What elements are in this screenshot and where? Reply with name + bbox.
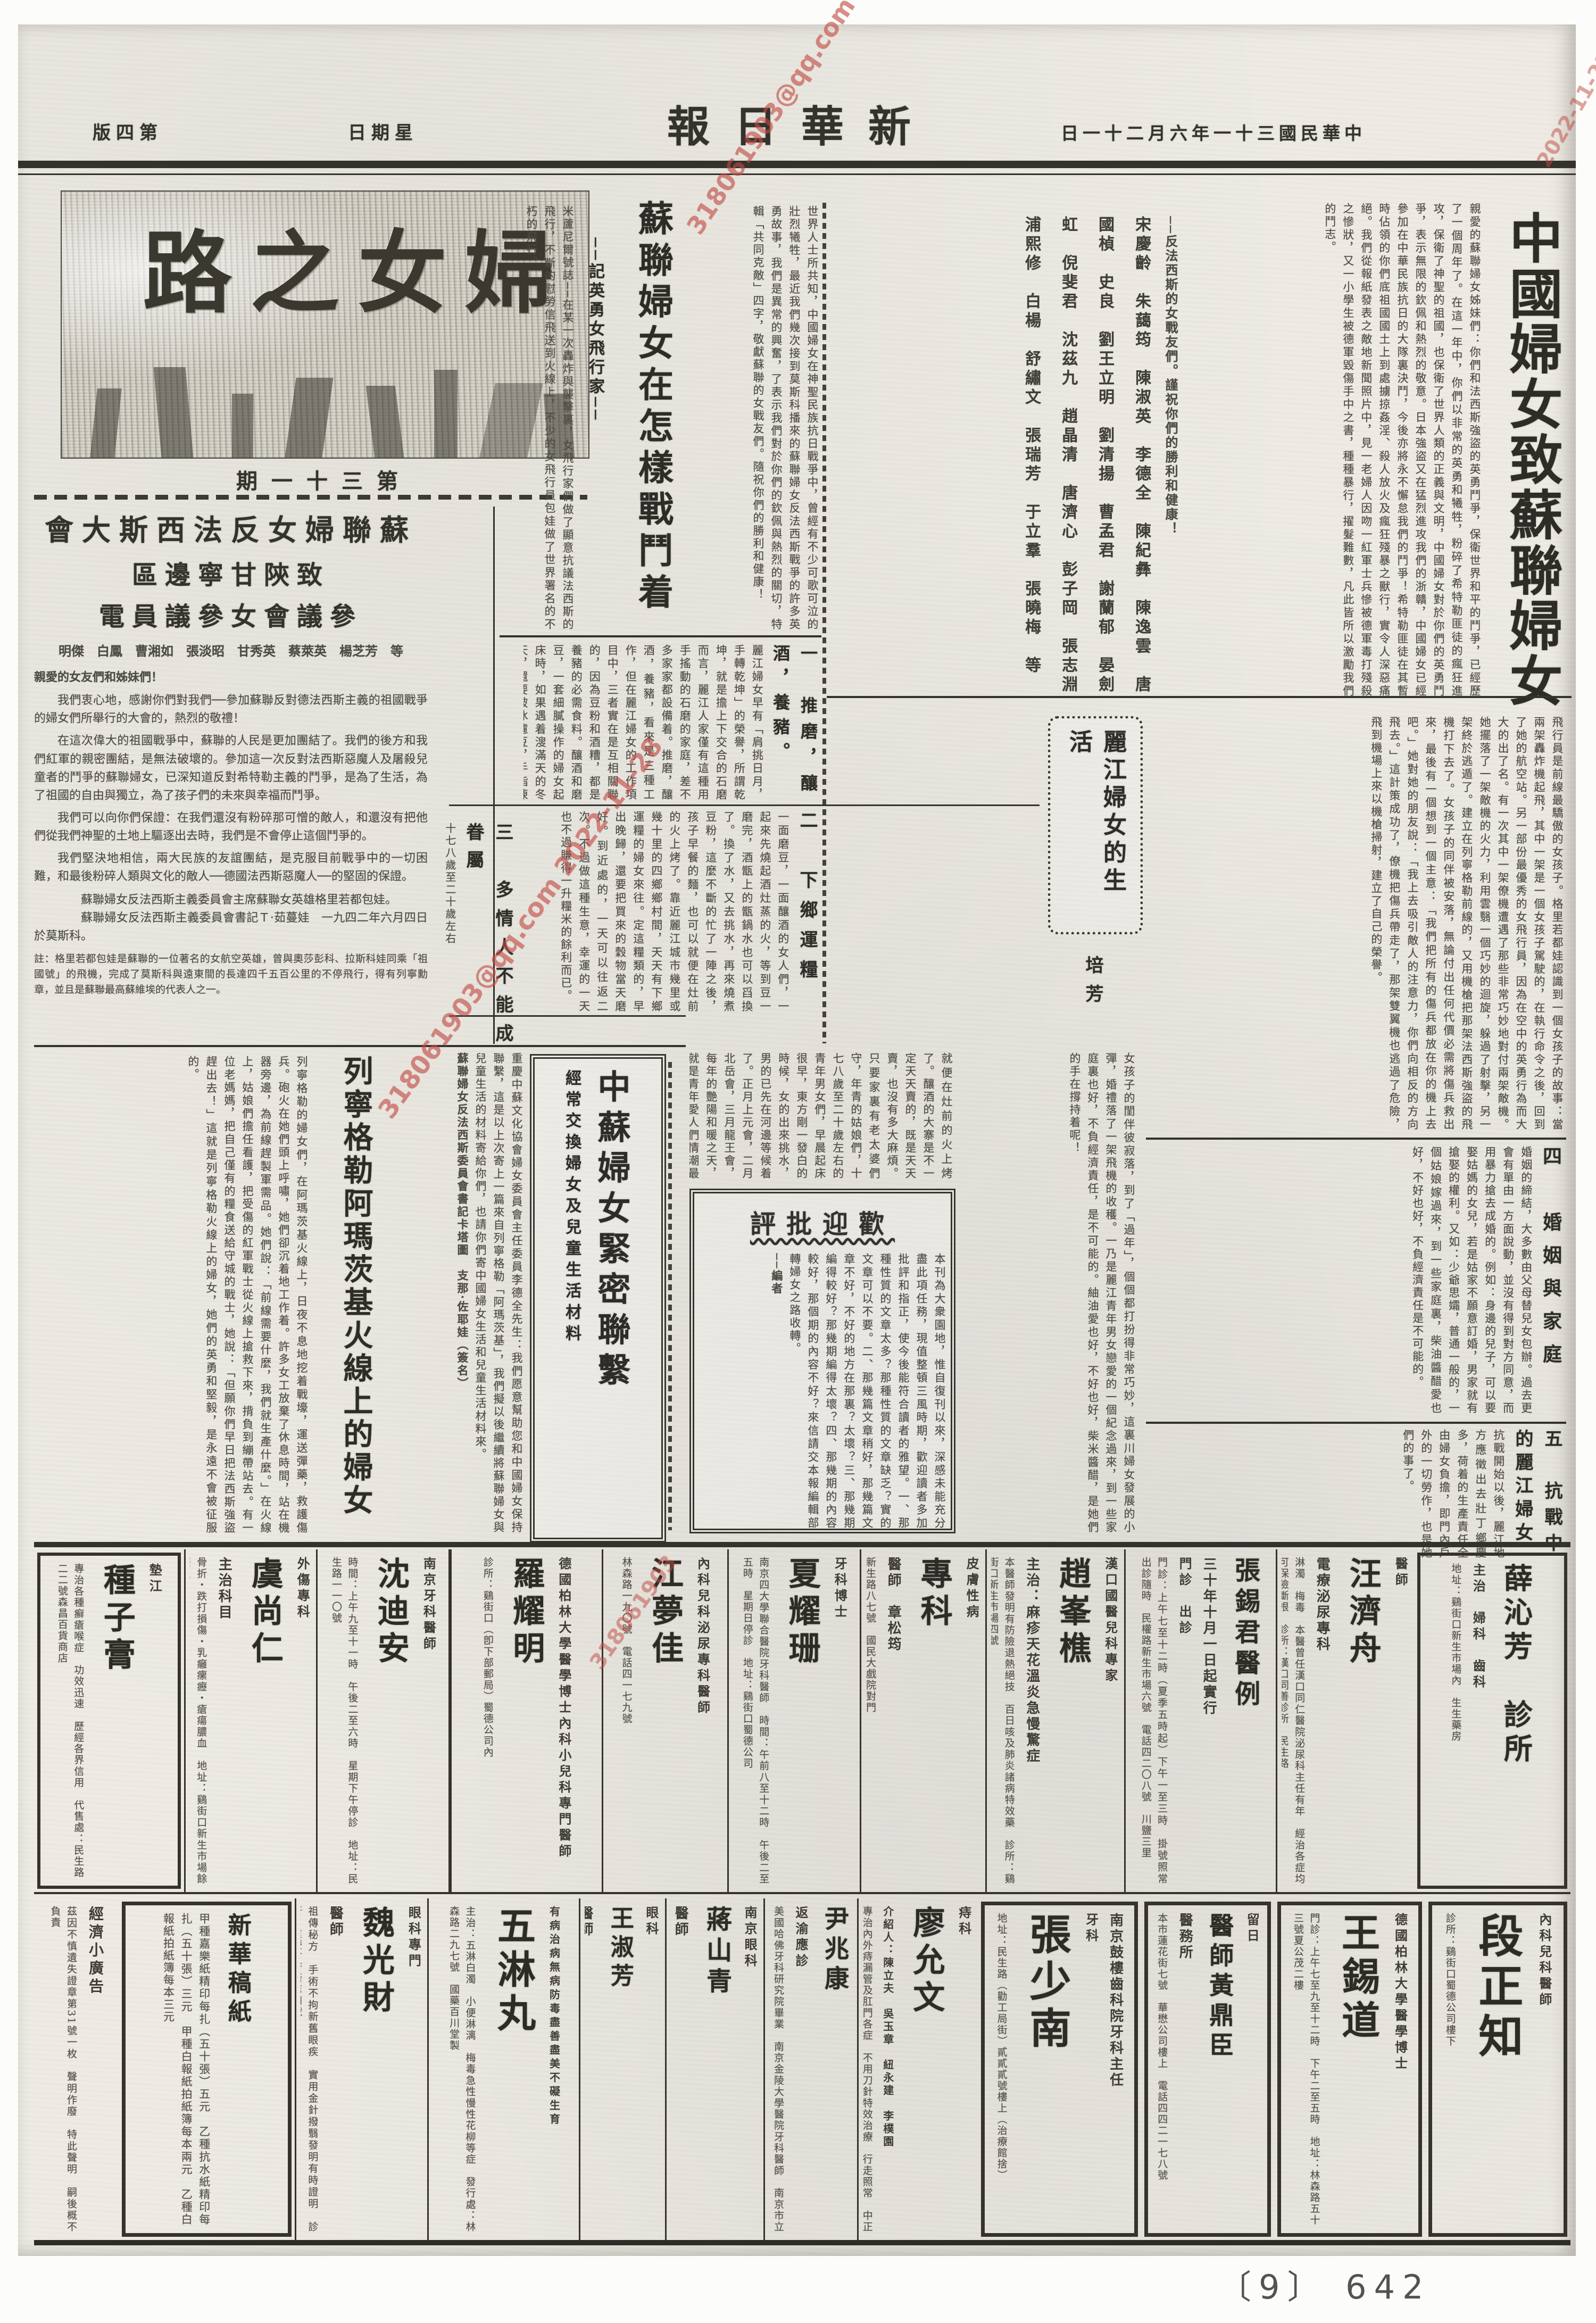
telegram-headline-2: 區邊寧甘陝致	[132, 560, 330, 590]
lijiang-section5-head: 五 抗戰中的麗江婦女	[1508, 1429, 1566, 1557]
telegram-paragraph: 我們堅決地相信，兩大民族的友誼團結，是克服目前戰爭中的一切困難，和最後粉碎人類與…	[34, 850, 428, 886]
ad-title: 張錫君醫例	[1226, 1557, 1263, 1885]
ad-title: 段正知	[1466, 1913, 1530, 2226]
leningrad-intro-block: 重慶中蘇文化協會婦女委員會主任委員李德全先生：我們愿意幫助您和中國婦女保持聯繫，…	[383, 1052, 526, 1534]
ad-details: 地址：民生路（勸工局街）貳貳貳號樓上（治療館捨）	[993, 1913, 1009, 2226]
ad-title: 張少南	[1017, 1913, 1077, 2226]
lijiang-title-box: 麗江婦女的生活	[1048, 716, 1143, 934]
leningrad-headline: 列寧格勒阿瑪茨基火線上的婦女	[315, 1056, 378, 1529]
ad-kicker: 門診 出診	[1175, 1557, 1194, 1885]
ad-details: 本市蓮花街七號 華懋公司樓上 電話四四二一七八號	[1154, 1913, 1170, 2226]
crowd-figure	[154, 367, 194, 458]
ad-subtitle: 南京鼓樓齒科院牙科主任	[1106, 1913, 1126, 2226]
ads-row-1: 墊江 種子膏 專治各種癬瘡喉症 功效迅速 歷經各界信用 代售處：民生路二二號森昌…	[34, 1549, 1570, 1894]
ad-details: 門診：上午七至十二時（夏季五時起）下午一至三時 掛號照常 出診隨時 民權路新生市…	[1137, 1557, 1170, 1885]
ad-title: 薛沁芳 診所	[1495, 1563, 1537, 1878]
ad-details: 專治各種癬瘡喉症 功效迅速 歷經各界信用 代售處：民生路二二號森昌百貨商店	[54, 1563, 86, 1878]
ad-title: 經濟小廣告	[85, 1906, 106, 2233]
ad-details: 祖傳秘方 手術不拘新舊眼疾 實用金針撥翳發明有時證明 診所：重慶會府衙第四號	[301, 1906, 321, 2233]
lijiang-section2-body: 一面磨豆，一面釀酒的女人們，一起來先燒起酒灶蒸的火，等到豆一磨完，酒甑上的甑鍋水…	[557, 811, 792, 1013]
article-telegram: 會大斯西法反女婦聯蘇 區邊寧甘陝致 電員議參女會議參 明傑 白鳳 曹湘如 張淡昭…	[34, 507, 428, 1065]
telegram-note: 註：格里若都包娃是蘇聯的一位著名的女航空英雄，曾與奧莎彭科、拉斯科娃同乘「祖國號…	[34, 951, 428, 998]
ad-details: 診所：鷄街口蜀德公司樓下	[1442, 1913, 1458, 2226]
ad-weiguangcai: 眼科專門 魏光財 醫師 祖傳秘方 手術不拘新舊眼疾 實用金針撥翳發明有時證明 診…	[295, 1898, 428, 2240]
ad-kicker: 南京牙科醫師	[419, 1557, 438, 1885]
weekday-label: 日期星	[348, 122, 418, 144]
ad-subtitle: 電療泌尿專科	[1312, 1557, 1332, 1885]
telegram-paragraph: 我們衷心地，感謝你們對我們──參加蘇聯反對德法西斯主義的祖國戰爭的婦女們所舉行的…	[34, 692, 428, 728]
ad-title: 趙峯樵	[1050, 1557, 1096, 1885]
exchange-box-title: 中蘇婦女緊密聯繫	[584, 1069, 637, 1516]
ad-subtitle: 醫師	[671, 1906, 691, 2233]
ad-title: 汪濟舟	[1340, 1557, 1386, 1885]
rule-above-ads	[34, 1542, 1570, 1547]
ad-duanzhengzhi: 內科兒科醫師 段正知 診所：鷄街口蜀德公司樓下	[1428, 1902, 1567, 2237]
aviator-subtitle: ──記英勇女飛行家──	[581, 237, 606, 620]
ad-title: 沈迪安	[368, 1557, 414, 1885]
header-rule-thick	[18, 161, 1576, 168]
ad-kicker: 牙科	[1082, 1913, 1101, 2226]
ad-title: 魏光財	[353, 1906, 399, 2233]
ad-jiangmengjia: 內科兒科泌尿專科醫師 江夢佳 林森路一九〇號 電話四一七九號	[602, 1549, 727, 1892]
header-rule-thin	[18, 173, 1576, 175]
ad-kicker: 醫師	[1391, 1557, 1410, 1885]
ad-huangdingchen: 留日 醫師黃鼎臣 醫務所 本市蓮花街七號 華懋公司樓上 電話四四二一七八號	[1144, 1902, 1271, 2237]
ad-subtitle: 主治：麻疹天花溫炎急慢驚症	[1023, 1557, 1042, 1885]
telegram-headline-3: 電員議參女會議參	[99, 602, 363, 632]
telegram-paragraph: 在這次偉大的祖國戰爭中，蘇聯的人民是更加團結了。我們的後方和我們紅軍的親密團結，…	[34, 732, 428, 804]
letter-signature-block: ──反法西斯的女戰友們。謹祝你們的勝利和健康！ 宋慶齡 朱藹筠 陳淑英 李德全 …	[835, 216, 1181, 695]
ad-title: 廖允文	[903, 1906, 950, 2233]
ad-title: 王錫道	[1329, 1913, 1385, 2226]
ad-jiangshanqing: 南京眼科 蔣山青 醫師 中一路四德里十五號 樓上 今日應診	[665, 1898, 763, 2240]
ad-subtitle: 醫務所	[1175, 1913, 1195, 2226]
ad-title: 蔣山青	[698, 1906, 735, 2233]
ad-details: 新生路八七號 國民大戲院對門	[866, 1557, 878, 1885]
ad-kicker: 德國柏林大學醫學博士	[1391, 1913, 1409, 2226]
lijiang-section1-head: 一 推磨，釀酒，養豬。	[766, 644, 821, 799]
exchange-box-subtitle: 經常交換婦女及兒童生活材料	[558, 1069, 584, 1516]
issue-number: 期一十三第	[236, 469, 412, 494]
ad-subtitle: 醫師	[585, 1906, 595, 2233]
ad-title: 五淋丸	[485, 1906, 541, 2233]
ad-title: 王淑芳	[603, 1906, 637, 2233]
ad-details: 淋濁 梅毒 本醫曾任漢口同仁醫院泌尿科主任有年 經治各症均可保險斷根 診所：漢口…	[1282, 1557, 1308, 1885]
crowd-figure	[90, 388, 122, 458]
ad-details: 門診：上午七至九至十二時 下午二至五時 地址：林森路五十三號夏公茂二樓	[1290, 1913, 1323, 2226]
ad-title: 虞尚仁	[242, 1557, 288, 1885]
letter-headline: 中國婦女致蘇聯婦女書	[1491, 211, 1570, 743]
ad-wulinwan: 有病治病無病防毒盡善盡美不礙生育 五淋丸 主治：五淋白濁 小便淋漓 梅毒急性慢性…	[427, 1898, 578, 2240]
lijiang-author: 培芳	[1074, 956, 1106, 1030]
ad-xinhua-gaozhi: 新華稿紙 甲種嘉樂紙精印每扎（五十張）五元 乙種抗水紙精印每扎（五十張）三元 甲…	[122, 1902, 292, 2237]
ad-details: 時間：上午九至十一時 午後二至六時 星期下午停診 地址：民生路一一〇號	[328, 1557, 361, 1885]
leningrad-signature: 蘇聯婦女反法西斯委員會書記卡塔圖 支那·佐耶娃（簽名）	[453, 1052, 471, 1534]
ad-details: 地址：鷄街口新生市場內 生生藥房	[1448, 1563, 1464, 1878]
ad-kicker: 留日	[1243, 1913, 1261, 2226]
lijiang-section3-body: 就便在灶前的火上烤了。釀酒的大寨是不一定天天賣的，既是天天賣，也沒有多大麻煩。只…	[689, 1052, 955, 1180]
lijiang-title: 麗江婦女的生活	[1061, 729, 1129, 921]
exchange-box: 中蘇婦女緊密聯繫 經常交換婦女及兒童生活材料	[530, 1054, 666, 1542]
lijiang-section5-body: 抗戰開始以後，麗江地方應徵出去壯丁鄉慶多，荷着的生產責任全由婦女負擔，即門內戶外…	[1399, 1429, 1508, 1559]
crowd-figure	[366, 386, 404, 458]
ad-kicker: 主治 婦科 齒科	[1469, 1563, 1487, 1878]
lijiang-section2: 二 下鄉運糧 一面磨豆，一面釀酒的女人們，一起來先燒起酒灶蒸的火，等到豆一磨完，…	[523, 811, 821, 1013]
telegram-signer-names: 明傑 白鳳 曹湘如 張淡昭 甘秀英 蔡萊英 楊芝芳 等	[34, 641, 428, 661]
ad-title: 專科	[911, 1557, 957, 1885]
ad-wangshufang: 眼科 王淑芳 醫師 專門 中一路一〇四號 全日應診	[579, 1898, 665, 2240]
telegram-headline-1: 會大斯西法反女婦聯蘇	[45, 513, 417, 547]
aviator-body-left: 米蘆尼爾號誌──在某一次轟炸與襲擊裏，女飛行家們做了顯意抗議法西斯的飛行，不斷的…	[500, 205, 577, 631]
lijiang-section1: 一 推磨，釀酒，養豬。 麗江婦女早有「肩挑日月，手轉乾坤」的榮譽，所謂乾坤，就是…	[523, 644, 821, 801]
ad-xueqinfang: 薛沁芳 診所 主治 婦科 齒科 地址：鷄街口新生市場內 生生藥房	[1417, 1553, 1567, 1889]
critique-box: 評批迎歡 本刊為大衆園地，惟自復刊以來，深感未能充分盡此項任務，現值整頓三風時期…	[689, 1189, 955, 1533]
rule-under-top-right	[827, 696, 1572, 698]
ad-kicker: 牙科博士	[830, 1557, 849, 1885]
letter-body: 親愛的蘇聯婦女姊妹們：你們和法西斯強盜的英勇鬥爭，保衛世界和平的鬥爭，已經歷了一…	[1186, 203, 1484, 698]
ad-wangjizhou: 醫師 汪濟舟 電療泌尿專科 淋濁 梅毒 本醫曾任漢口同仁醫院泌尿科主任有年 經治…	[1276, 1549, 1415, 1892]
ad-kicker: 內科兒科醫師	[1535, 1913, 1554, 2226]
ad-subtitle: 三十年十月一日起實行	[1199, 1557, 1219, 1885]
crowd-figure	[285, 378, 333, 458]
ad-details: 專治內外痔漏管及肛門各症 不用刀針特效治療 行走照常 中正路六一九號 治癒銘謝	[863, 1906, 875, 2233]
ad-pifu-zhuanke: 皮膚性病 專科 醫師 章松筠 新生路八七號 國民大戲院對門	[860, 1549, 985, 1892]
letter-closing: ──反法西斯的女戰友們。謹祝你們的勝利和健康！	[1160, 216, 1181, 695]
aviator-headline: 蘇聯婦女在怎樣戰鬥着	[610, 200, 679, 663]
lijiang-mid-columns: 女孩子的閨伴彼寂落，到了「過年」，個個都打扮得非常巧妙，這裏川婦女發展的小彈，婚…	[962, 1052, 1138, 1534]
ad-kicker: 眼科專門	[404, 1906, 423, 2233]
aviator-continuation: 飛行員是前線最驕傲的女孩子。格里若都娃認識到一個女孩子的故事：當兩架轟炸機起飛，…	[1146, 716, 1566, 1131]
critique-box-body: 本刊為大衆園地，惟自復刊以來，深感未能充分盡此項任務，現值整頓三風時期，歡迎讀者…	[786, 1253, 949, 1530]
date-line: 日一十二月六年一十三國民華中	[1061, 123, 1366, 144]
ad-zhangxijun: 張錫君醫例 三十年十月一日起實行 門診 出診 門診：上午七至十二時（夏季五時起）…	[1124, 1549, 1276, 1892]
crowd-figure	[232, 394, 253, 458]
ad-title: 醫師黃鼎臣	[1202, 1913, 1237, 2226]
lijiang-section4-body: 婚姻的締結，大多數由父母替兒女包辦。過去更會有單由一方面說動，並沒有得到對方同意…	[1409, 1146, 1535, 1415]
ads-row-2: 經濟小廣告 茲因不慎遺失證章第31號一枚 聲明作廢 特此聲明 嗣後概不負責 新華…	[34, 1898, 1570, 2245]
ad-subtitle: 醫師 章松筠	[884, 1557, 903, 1885]
aviator-body-right: 世界人士所共知，中國婦女在神聖民族抗日戰爭中，曾經有不少可歌可泣的壯烈犧牲，最近…	[684, 205, 821, 631]
ad-details: 骨折・跌打損傷・乳癰瘰癧・瘡瘍膿血 地址：鷄街口新生市場餘慶里	[190, 1557, 210, 1885]
ad-kicker: 有病治病無病防毒盡善盡美不礙生育	[546, 1906, 562, 2233]
lijiang-section5: 五 抗戰中的麗江婦女 抗戰開始以後，麗江地方應徵出去壯丁鄉慶多，荷着的生產責任全…	[1146, 1429, 1566, 1559]
ad-details: 茲因不慎遺失證章第31號一枚 聲明作廢 特此聲明 嗣後概不負責	[47, 1906, 79, 2233]
ad-kicker: 墊江	[145, 1563, 164, 1878]
ad-kicker: 眼科	[642, 1906, 661, 2233]
ad-yushangren: 外傷專科 虞尚仁 主治科目 骨折・跌打損傷・乳癰瘰癧・瘡瘍膿血 地址：鷄街口新生…	[184, 1549, 317, 1892]
rule-under-aviator	[500, 635, 821, 637]
telegram-signature-2: 蘇聯婦女反法西斯主義委員會書記Ｔ·茹蔓娃 一九四二年六月四日於莫斯科。	[34, 909, 428, 945]
rule-right-band-2	[1146, 1422, 1566, 1424]
lijiang-section3-head-block: 三 多情人不能成眷屬 十七八歲至二十歲左右	[432, 823, 517, 1057]
letter-signatories: 宋慶齡 朱藹筠 陳淑英 李德全 陳紀彝 陳逸雲 唐國楨 史良 劉王立明 劉清揚 …	[1013, 216, 1160, 695]
rule-center-band-1	[449, 804, 1040, 806]
lijiang-section2-head: 二 下鄉運糧	[792, 811, 821, 1008]
crowd-figure	[434, 370, 458, 458]
ad-details: 林森路一九〇號 電話四一七九號	[618, 1557, 634, 1885]
ad-details: 本醫師發明有防險退熱絕技 百日咳及肺炎諸病特效藥 診所：鷄街口新生市場四號	[991, 1557, 1017, 1885]
telegram-paragraph: 我們可以向你們保證：在我們還沒有粉碎那可憎的敵人，和還沒有把他們從我們神聖的土地…	[34, 809, 428, 845]
ad-yinzhaokang: 尹兆康 返渝應診 美國哈佛牙科研究院畢業 南京金陵大學醫院牙科醫師 南京市立醫院…	[763, 1898, 857, 2240]
ad-details: 南京四大學聯合醫院牙科醫師 時間：午前八至十二時 午後二至五時 星期日停診 地址…	[739, 1557, 771, 1885]
lijiang-section1-body: 麗江婦女早有「肩挑日月，手轉乾坤」的榮譽，所謂乾坤，就是擔上下交合的石磨而言，麗…	[523, 644, 766, 801]
lijiang-section4-head: 四 婚姻與家庭	[1535, 1146, 1566, 1401]
critique-box-title: 評批迎歡	[750, 1209, 895, 1239]
ad-zhangshaonan: 南京鼓樓齒科院牙科主任 牙科 張少南 地址：民生路（勸工局街）貳貳貳號樓上（治療…	[981, 1902, 1138, 2237]
ad-zhongzigao: 墊江 種子膏 專治各種癬瘡喉症 功效迅速 歷經各界信用 代售處：民生路二二號森昌…	[37, 1553, 181, 1889]
edition-label: 版四第	[93, 122, 163, 144]
telegram-signature-1: 蘇聯婦女反法西斯主義委員會主席蘇聯女英雄格里若都包娃。	[34, 891, 428, 909]
lijiang-section4: 四 婚姻與家庭 婚姻的締結，大多數由父母替兒女包辦。過去更會有單由一方面說動，並…	[1146, 1146, 1566, 1415]
ad-details: 主治：五淋白濁 小便淋漓 梅毒急性慢性花柳等症 發行處：林森路二九七號 國藥百川…	[446, 1906, 478, 2233]
divider-chain-vertical	[822, 203, 826, 1043]
ad-kicker: 南京眼科	[741, 1906, 759, 2233]
lijiang-section3-side: 十七八歲至二十歲左右	[441, 823, 458, 1057]
ad-subtitle: 介紹人：陳立夫 吳玉章 紐永建 李樸園	[880, 1906, 896, 2233]
ad-details: 診所：鷄街口（卽下部郵局）蜀德公司內	[479, 1557, 495, 1885]
ad-kicker: 返渝應診	[792, 1906, 810, 2233]
ad-subtitle: 主治科目	[214, 1557, 234, 1885]
ad-xiayaoshan: 牙科博士 夏耀珊 南京四大學聯合醫院牙科醫師 時間：午前八至十二時 午後二至五時…	[727, 1549, 860, 1892]
ad-kicker: 皮膚性病	[962, 1557, 981, 1885]
ad-title: 新華稿紙	[220, 1913, 254, 2226]
ad-details: 甲種嘉樂紙精印每扎（五十張）五元 乙種抗水紙精印每扎（五十張）三元 甲種白報紙拍…	[159, 1913, 213, 2226]
paper-name: 報日華新	[667, 102, 935, 152]
ad-jingji-xiao-guanggao: 經濟小廣告 茲因不慎遺失證章第31號一枚 聲明作廢 特此聲明 嗣後概不負責	[34, 1898, 119, 2240]
leningrad-body: 列寧格勒的婦女們，在阿瑪茨基火線上，日夜不息地挖着戰壕，運送彈藥，救護傷兵。砲火…	[34, 1056, 311, 1534]
divider-chain-mid	[668, 1062, 672, 1530]
archive-page-number: 〔9〕 642	[1218, 2260, 1431, 2308]
ad-details: 美國哈佛牙科研究院畢業 南京金陵大學醫院牙科醫師 南京市立醫院牙科主任 時間：九…	[769, 1906, 786, 2233]
ad-kicker: 外傷專科	[293, 1557, 312, 1885]
newspaper-paper: 版四第 日期星 報日華新 日一十二月六年一十三國民華中 路之女婦 期一十三第 會…	[18, 24, 1576, 2256]
critique-box-signoff: ──編者	[768, 1253, 786, 1530]
ad-zhaofengqiao: 漢口國醫兒科專家 趙峯樵 主治：麻疹天花溫炎急慢驚症 本醫師發明有防險退熱絕技 …	[985, 1549, 1124, 1892]
lijiang-section3-head: 三 多情人不能成眷屬	[459, 823, 517, 1051]
rule-right-band-1	[1146, 1138, 1566, 1140]
telegram-salutation: 親愛的女友們和姊妹們！	[34, 668, 428, 686]
ad-title: 羅耀明	[503, 1557, 550, 1885]
ad-kicker: 德國柏林大學醫學博士內科小兒科專門醫師	[555, 1557, 573, 1885]
ad-kicker: 漢口國醫兒科專家	[1101, 1557, 1120, 1885]
ad-title: 尹兆康	[818, 1906, 853, 2233]
ad-subtitle: 醫師	[326, 1906, 345, 2233]
ad-kicker: 內科兒科泌尿專科醫師	[694, 1557, 712, 1885]
ad-title: 種子膏	[94, 1563, 140, 1878]
ad-title: 夏耀珊	[779, 1557, 825, 1885]
leningrad-intro: 重慶中蘇文化協會婦女委員會主任委員李德全先生：我們愿意幫助您和中國婦女保持聯繫，…	[471, 1052, 526, 1534]
ad-luoyaoming: 德國柏林大學醫學博士內科小兒科專門醫師 羅耀明 診所：鷄街口（卽下部郵局）蜀德公…	[448, 1549, 602, 1892]
ad-shendian: 南京牙科醫師 沈迪安 時間：上午九至十一時 午後二至六時 星期下午停診 地址：民…	[316, 1549, 448, 1892]
rule-above-leningrad	[34, 1045, 686, 1047]
ad-liaoyunwen: 痔科 廖允文 介紹人：陳立夫 吳玉章 紐永建 李樸園 專治內外痔漏管及肛門各症 …	[857, 1898, 978, 2240]
ad-kicker: 痔科	[955, 1906, 974, 2233]
ad-wangxidao: 德國柏林大學醫學博士 王錫道 門診：上午七至九至十二時 下午二至五時 地址：林森…	[1277, 1902, 1422, 2237]
newspaper-scan-page: { "header": { "date": "中華民國三十一年六月二十一日", …	[0, 0, 1596, 2323]
ad-title: 江夢佳	[642, 1557, 688, 1885]
